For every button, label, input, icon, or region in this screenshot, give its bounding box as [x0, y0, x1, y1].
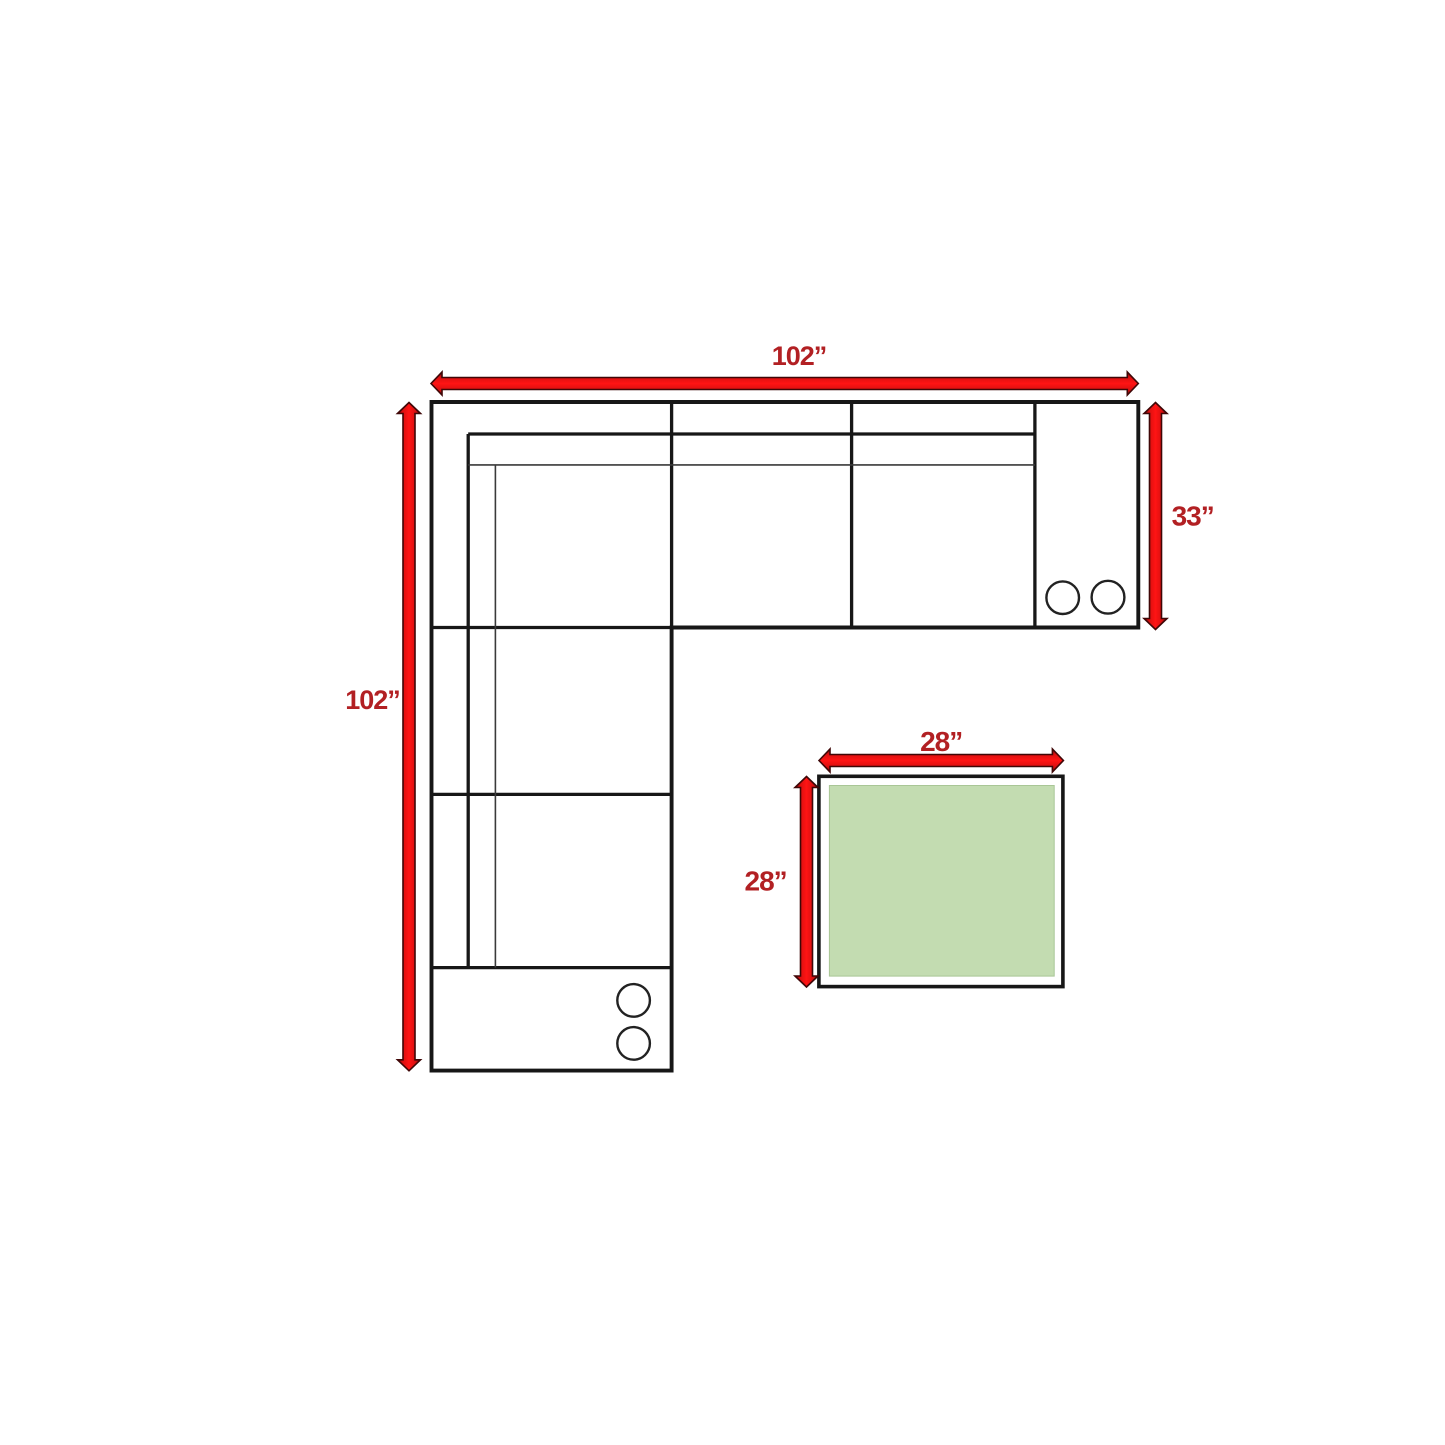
svg-text:28”: 28”: [745, 866, 787, 897]
svg-text:33”: 33”: [1172, 501, 1214, 532]
svg-text:102”: 102”: [345, 685, 400, 715]
svg-text:102”: 102”: [772, 341, 827, 371]
svg-text:28”: 28”: [920, 726, 962, 757]
